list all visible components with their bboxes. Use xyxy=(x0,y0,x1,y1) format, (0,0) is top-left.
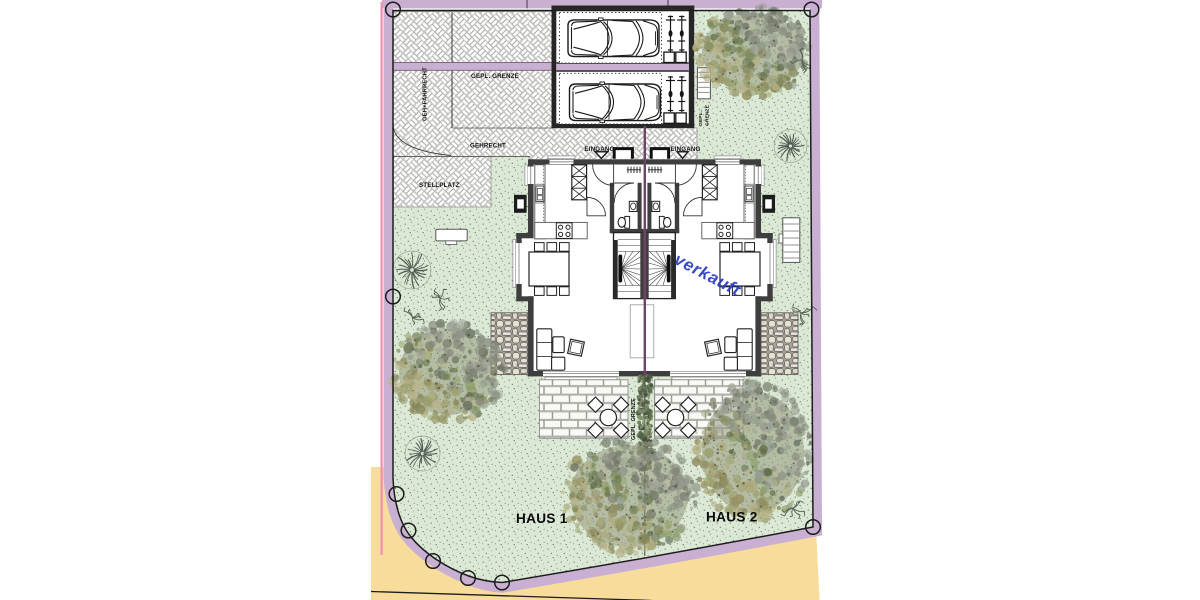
svg-text:GEPL. GRENZE: GEPL. GRENZE xyxy=(471,73,519,80)
svg-text:HAUS 1: HAUS 1 xyxy=(516,511,568,526)
svg-text:STELLPLATZ: STELLPLATZ xyxy=(419,182,460,189)
svg-text:GEHRECHT: GEHRECHT xyxy=(470,143,506,150)
svg-text:HAUS 2: HAUS 2 xyxy=(706,510,758,525)
svg-text:GEH+FAHRRECHT: GEH+FAHRRECHT xyxy=(423,67,429,121)
svg-text:GRENZE: GRENZE xyxy=(705,104,711,126)
svg-text:GEPL. GRENZE: GEPL. GRENZE xyxy=(631,398,637,440)
svg-text:GEPL.:: GEPL.: xyxy=(698,109,704,126)
